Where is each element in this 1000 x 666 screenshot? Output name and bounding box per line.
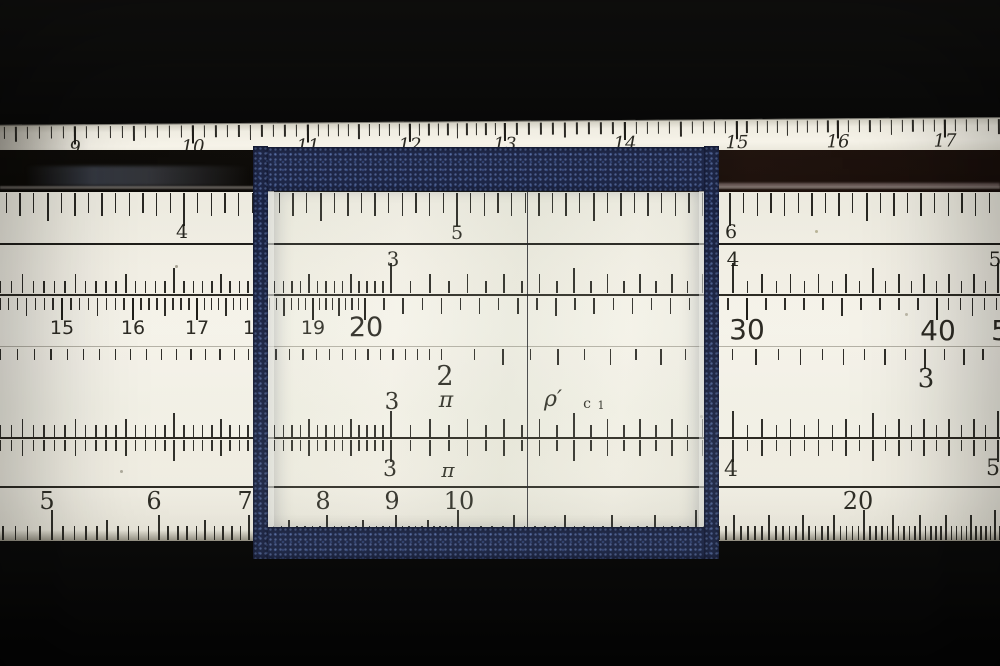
worn-paint-smudge [25, 166, 250, 186]
ruler-tick [121, 126, 122, 138]
ruler-tick [379, 124, 380, 136]
ruler-tick [869, 120, 870, 132]
scale-number: 40 [920, 317, 956, 345]
ruler-tick [3, 127, 4, 139]
ruler-tick [714, 121, 715, 133]
scale-number: 16 [121, 319, 145, 338]
slide-rule-photo: 9101112131415161745634515161718192030405… [0, 0, 1000, 666]
ruler-tick [552, 123, 553, 135]
ruler-tick [39, 127, 40, 139]
cursor-hairline[interactable] [527, 191, 529, 527]
scale-number: 5 [39, 489, 54, 513]
scale-number: 30 [729, 316, 765, 344]
scale-number: 4 [176, 223, 188, 242]
scale-number: 7 [237, 489, 252, 513]
ruler-tick [466, 123, 467, 135]
scale-number: 6 [725, 223, 737, 242]
ruler-tick [691, 121, 692, 133]
ruler-tick [98, 126, 99, 138]
ruler-tick [923, 120, 924, 132]
ruler-tick [438, 123, 439, 135]
ruler-tick [456, 123, 458, 138]
ruler-tick [859, 120, 860, 132]
scale-number: 4 [724, 459, 738, 481]
ruler-tick [756, 121, 757, 133]
cursor-frame[interactable] [253, 146, 719, 559]
cursor-glass[interactable] [268, 191, 705, 527]
scale-number: 17 [934, 132, 957, 150]
ruler-tick [647, 122, 648, 134]
ruler-tick [428, 124, 429, 136]
ruler-tick [817, 120, 818, 132]
ruler-tick [880, 120, 881, 132]
cursor-top-rail[interactable] [253, 147, 719, 191]
scale-number: 15 [50, 319, 74, 338]
scale-number: 50 [991, 317, 1000, 345]
ruler-tick [110, 126, 111, 138]
cursor-left-bar[interactable] [253, 146, 268, 559]
scale-number: 16 [827, 133, 850, 151]
cursor-right-bar[interactable] [704, 146, 719, 559]
scale-number: 4 [727, 249, 740, 269]
ruler-tick [987, 119, 988, 131]
scale-number: 3 [918, 366, 935, 392]
ruler-tick [328, 124, 329, 136]
ruler-tick [447, 123, 448, 135]
ruler-tick [576, 122, 577, 134]
ruler-tick [238, 125, 239, 137]
ruler-tick [389, 124, 390, 136]
ruler-tick [786, 121, 788, 136]
ruler-tick [977, 119, 978, 131]
ruler-tick [27, 127, 28, 139]
ruler-tick [51, 127, 52, 139]
scale-number: 17 [185, 319, 209, 338]
scale-number: 5 [986, 458, 1000, 480]
ruler-tick [912, 120, 913, 132]
ruler-tick [669, 122, 670, 134]
ruler-tick [348, 124, 349, 136]
ruler-tick [284, 125, 285, 137]
ruler-tick [600, 122, 601, 134]
ruler-tick [261, 125, 262, 137]
ruler-tick [368, 124, 369, 136]
ruler-tick [215, 125, 216, 137]
ruler-tick [528, 123, 529, 135]
ruler-tick [766, 121, 767, 133]
ruler-tick [338, 124, 339, 136]
scale-number: 5 [989, 249, 1000, 269]
ruler-tick [227, 125, 228, 137]
ruler-tick [169, 126, 170, 138]
ruler-tick [680, 122, 682, 137]
ruler-tick [777, 121, 778, 133]
ruler-tick [145, 126, 146, 138]
ruler-tick [966, 119, 967, 131]
glass-edge-reflection [268, 191, 274, 527]
ruler-tick [540, 123, 541, 135]
ruler-tick [588, 122, 589, 134]
ruler-tick [133, 126, 135, 141]
ruler-tick [358, 124, 360, 139]
ruler-tick [249, 125, 251, 140]
ruler-tick [564, 122, 566, 137]
ruler-tick [62, 126, 63, 138]
ruler-tick [15, 127, 17, 142]
cursor-bottom-rail[interactable] [253, 527, 719, 559]
ruler-tick [658, 122, 659, 134]
scale-number: 6 [146, 489, 161, 513]
ruler-tick [797, 121, 798, 133]
ruler-tick [86, 126, 87, 138]
scale-number: 20 [843, 489, 874, 513]
ruler-tick [157, 126, 158, 138]
ruler-tick [273, 125, 274, 137]
ruler-tick [890, 120, 892, 135]
ruler-tick [476, 123, 477, 135]
ruler-tick [703, 121, 704, 133]
ruler-tick [485, 123, 486, 135]
ruler-tick [901, 120, 902, 132]
ruler-tick [807, 121, 808, 133]
